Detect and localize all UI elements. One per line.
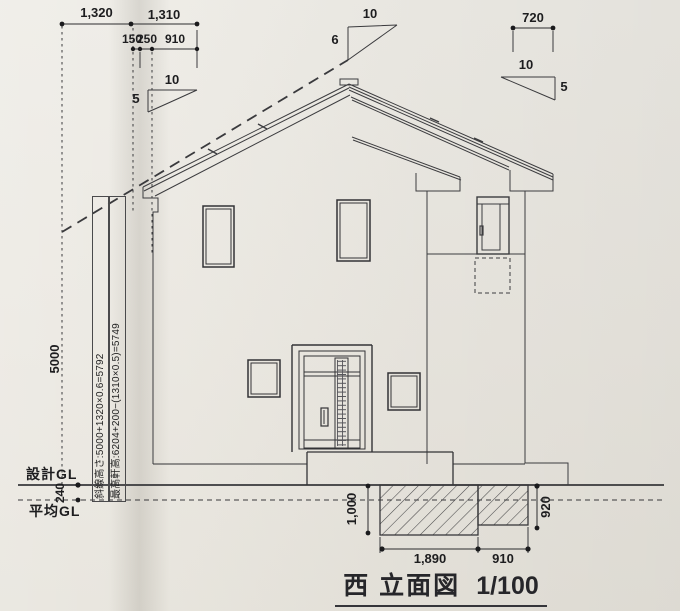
entrance-door [153,345,525,485]
roof-outline [143,79,568,485]
dim-1000: 1,000 [345,487,359,531]
drawing-title: 西 立面図1/100 [316,566,566,607]
windows [203,200,420,410]
dim-1310: 1,310 [131,8,197,22]
dim-920: 920 [539,485,553,529]
dimension-extension-lines [133,28,553,553]
dim-910-top: 910 [161,32,189,46]
formula-max-eave-height: 最高軒高:6204+200−(1310×0.5)=5749 [109,199,125,499]
formula-box-max-eave: 最高軒高:6204+200−(1310×0.5)=5749 [108,196,126,502]
balcony-door [427,197,525,293]
average-gl-label: 平均GL [29,504,101,518]
pitch-right-run: 10 [511,58,541,72]
pitch-middle-rise: 6 [327,33,343,47]
foundation-hatch [380,485,528,535]
elevation-drawing-sheet: 1,320 1,310 150 250 910 720 10 5 10 6 10… [0,0,680,611]
dim-1320: 1,320 [62,6,131,20]
pitch-left-run: 10 [157,73,187,87]
drawing-title-scale: 1/100 [476,572,539,600]
dim-250: 250 [133,32,161,46]
pitch-triangles [148,25,555,112]
pitch-middle-run: 10 [355,7,385,21]
design-gl-label: 設計GL [26,467,98,481]
pitch-left-rise: 5 [128,92,144,106]
boundary-height-5000: 5000 [48,337,62,381]
drawing-title-text: 西 立面図 [343,572,460,600]
dim-720: 720 [513,11,553,25]
pitch-right-rise: 5 [556,80,572,94]
dim-910-bottom: 910 [478,552,528,566]
dim-1890: 1,890 [382,552,478,566]
formula-slope-height: 斜線高さ:5000+1320×0.6=5792 [93,199,109,499]
